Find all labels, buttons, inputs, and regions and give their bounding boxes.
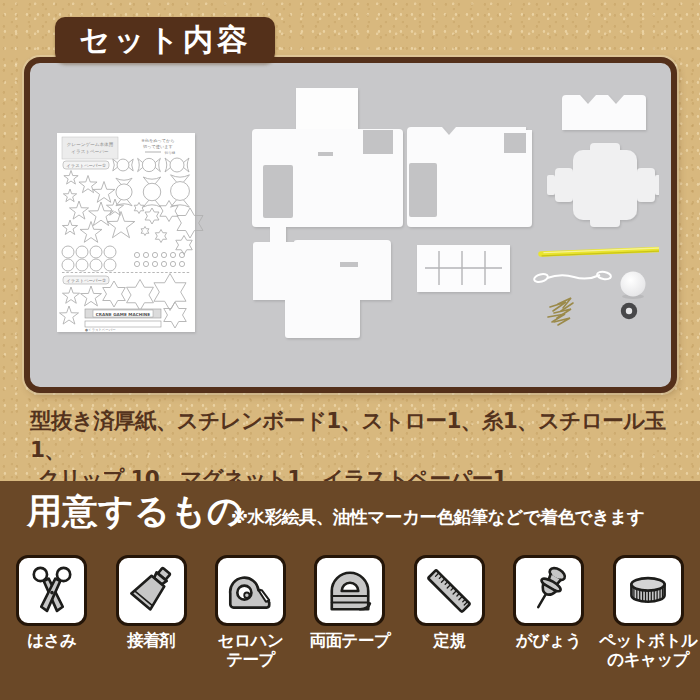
ruler-icon [420,562,478,620]
ring-magnet [621,303,637,319]
styrofoam-ball [621,272,646,300]
tool-tile [414,555,485,626]
cardboard-body-right [407,127,532,227]
things-to-prepare-section: 用意するもの ※水彩絵具、油性マーカー色鉛筆などで着色できます はさみ [0,481,700,700]
tool-tile [513,555,584,626]
diecut-cardboard-pieces [252,88,659,338]
machine-plate-text: CRANE GAME MACHINE [96,312,151,317]
string [533,271,611,283]
paper-footnote: ●イラストペーパー [85,328,116,332]
tool-label: ペットボトル のキャップ [599,631,697,669]
tool-double-sided-tape: 両面テープ [300,555,399,669]
set-contents-panel: クレーンゲーム本体用 イラストペーパー ※色をぬってから 切って使います 切り線… [24,57,677,393]
tool-label: がびょう [516,631,582,650]
tool-tile [314,555,385,626]
clips-pile [548,298,573,325]
contents-line-1: 型抜き済厚紙、スチレンボード1、ストロー1、糸1、スチロール玉1、 [30,406,690,464]
cellophane-tape-icon [222,562,280,620]
cardboard-body-left [252,129,403,227]
straw [541,248,659,256]
kit-parts-illustration: クレーンゲーム本体用 イラストペーパー ※色をぬってから 切って使います 切り線… [30,63,659,375]
tool-ruler: 定規 [400,555,499,669]
tools-row: はさみ 接着剤 [0,555,700,669]
paper-corner-box [62,137,118,159]
tool-label: セロハン テープ [218,631,284,669]
illustration-paper-sheet: クレーンゲーム本体用 イラストペーパー ※色をぬってから 切って使います 切り線… [57,133,203,332]
tool-scissors: はさみ [2,555,101,669]
styrene-board [417,245,510,292]
set-contents-header: セット内容 [55,17,275,63]
glue-tube-icon [122,562,180,620]
tool-tile [116,555,187,626]
coloring-note: ※水彩絵具、油性マーカー色鉛筆などで着色できます [231,505,645,529]
paper-cut-note-3: 切り線 [165,151,176,155]
paper-corner-text-2: イラストペーパー [71,149,109,154]
pushpin-icon [520,562,578,620]
paper-sheet2-label: イラストペーパー② [66,278,106,283]
cardboard-base-piece [253,224,391,338]
tool-pushpin: がびょう [499,555,598,669]
double-sided-tape-icon [321,562,379,620]
tool-tile [215,555,286,626]
tool-label: はさみ [27,631,76,650]
set-contents-title: セット内容 [79,22,251,57]
tool-tile [613,555,684,626]
prepare-section-title: 用意するもの [27,488,243,535]
tool-tile [16,555,87,626]
cardboard-notched-piece [562,95,646,130]
tool-cellophane-tape: セロハン テープ [201,555,300,669]
tool-bottle-cap: ペットボトル のキャップ [599,555,698,669]
bottle-cap-icon [619,562,677,620]
set-contents-description: 型抜き済厚紙、スチレンボード1、ストロー1、糸1、スチロール玉1、 クリップ 1… [30,406,690,493]
tool-label: 接着剤 [127,631,175,650]
tool-label: 定規 [433,631,465,650]
paper-sheet1-label: イラストペーパー① [66,163,106,168]
scissors-icon [23,562,81,620]
tool-glue: 接着剤 [101,555,200,669]
tool-label: 両面テープ [310,631,391,650]
cardboard-cross-box [547,143,659,227]
paper-cut-note-2: 切って使います [142,144,173,149]
